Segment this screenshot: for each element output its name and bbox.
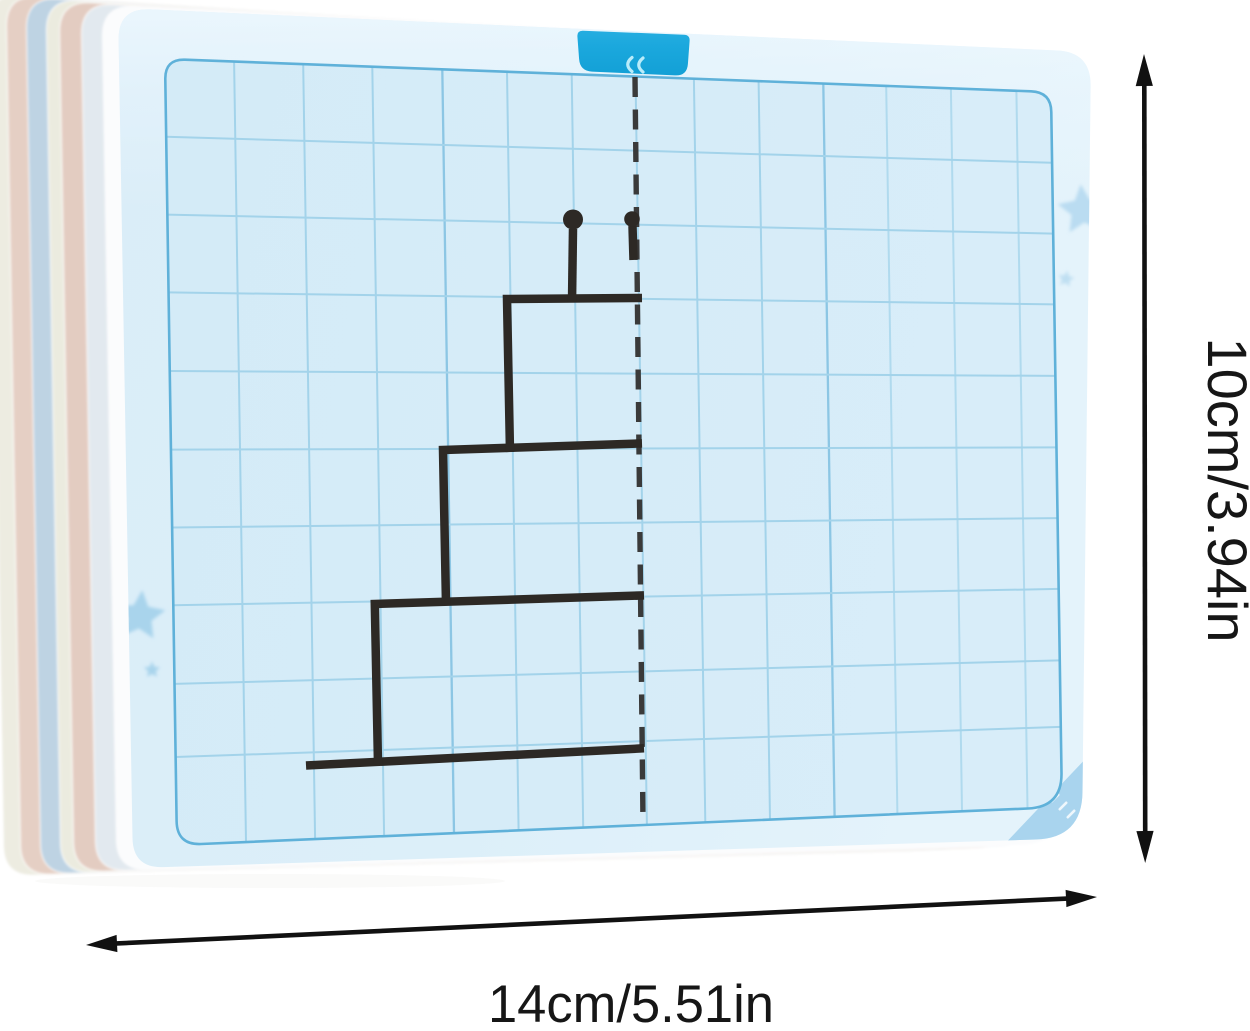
svg-text:10cm/3.94in: 10cm/3.94in [1196,337,1250,642]
svg-text:14cm/5.51in: 14cm/5.51in [488,975,774,1031]
